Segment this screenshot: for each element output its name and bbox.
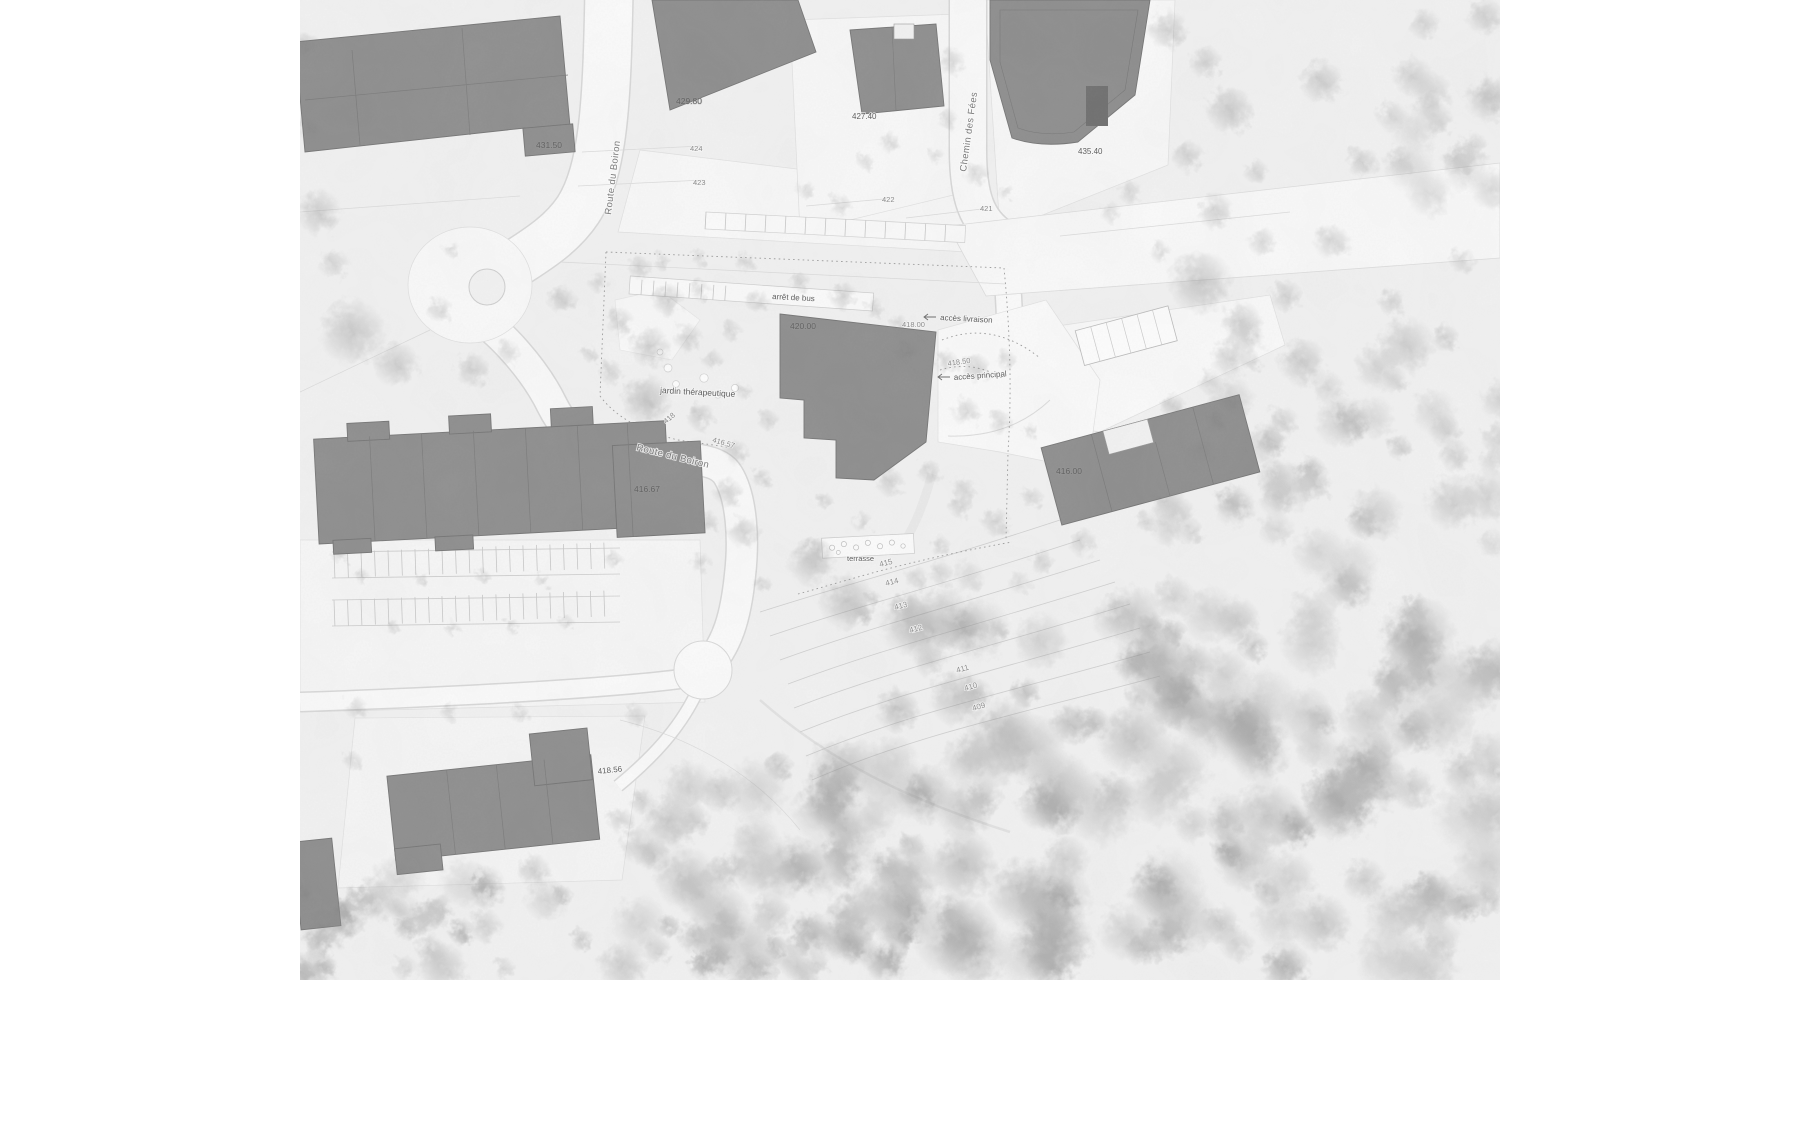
elevation-building-top-mid: 427.40 <box>852 112 877 121</box>
elevation-building-top-center: 429.80 <box>676 96 702 106</box>
elevation-building-top-left: 431.50 <box>536 140 562 150</box>
spot-elevation-court: 418.00 <box>902 320 925 329</box>
spot-height-424: 424 <box>690 144 703 153</box>
spot-height-422: 422 <box>882 195 895 204</box>
elevation-building-main: 420.00 <box>790 321 816 331</box>
spot-height-423: 423 <box>693 178 706 187</box>
annotation-terrace: terrasse <box>847 554 874 563</box>
elevation-building-top-right: 435.40 <box>1078 147 1103 156</box>
elevation-building-east: 416.00 <box>1056 466 1082 476</box>
spot-height-421: 421 <box>980 204 993 213</box>
site-plan-map: Route du Boiron Route du Boiron Chemin d… <box>0 0 1800 1125</box>
elevation-building-slab: 416.67 <box>634 484 660 494</box>
site-plan-page: Route du Boiron Route du Boiron Chemin d… <box>0 0 1800 1125</box>
paper-grain <box>300 0 1500 980</box>
